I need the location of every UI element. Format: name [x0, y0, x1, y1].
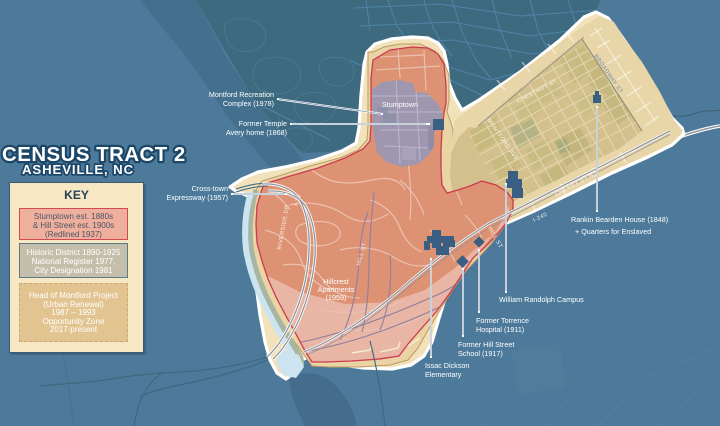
svg-text:School (1917): School (1917) [458, 349, 503, 358]
svg-text:Avery home (1868): Avery home (1868) [226, 128, 287, 137]
svg-text:ASHEVILLE, NC: ASHEVILLE, NC [22, 162, 134, 177]
svg-text:Cross-town: Cross-town [192, 184, 228, 193]
svg-text:William Randolph Campus: William Randolph Campus [499, 295, 584, 304]
svg-text:Stumptown: Stumptown [382, 100, 418, 109]
svg-text:Former Hill Street: Former Hill Street [458, 340, 514, 349]
svg-text:Montford Recreation: Montford Recreation [209, 90, 274, 99]
svg-text:Elementary: Elementary [425, 370, 462, 379]
svg-text:(1959): (1959) [326, 293, 347, 302]
svg-text:Former Temple: Former Temple [239, 119, 287, 128]
svg-text:+ Quarters for Enslaved: + Quarters for Enslaved [575, 227, 651, 236]
svg-text:Former Torrence: Former Torrence [476, 316, 529, 325]
svg-text:Complex (1978): Complex (1978) [223, 99, 274, 108]
svg-text:Rankin Bearden House (1848): Rankin Bearden House (1848) [571, 215, 668, 224]
svg-text:Issac Dickson: Issac Dickson [425, 361, 469, 370]
svg-text:Hospital (1911): Hospital (1911) [476, 325, 524, 334]
svg-text:Expressway (1957): Expressway (1957) [166, 193, 228, 202]
